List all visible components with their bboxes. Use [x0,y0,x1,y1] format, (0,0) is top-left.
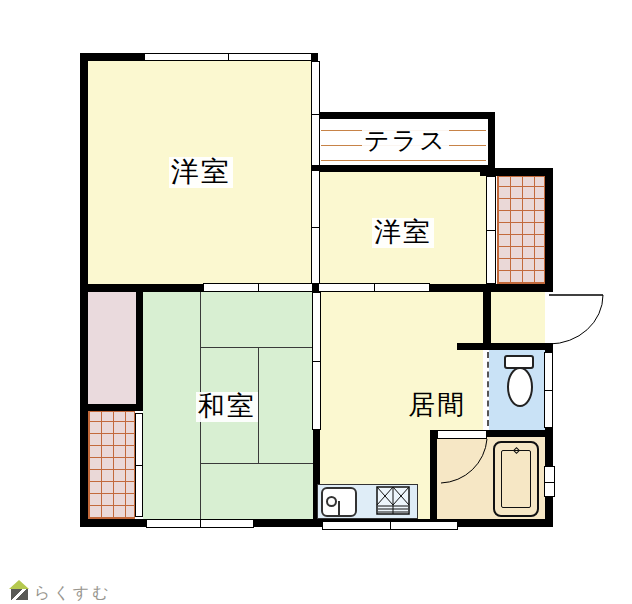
room-label-terrace: テラス [362,127,449,155]
window-top [144,53,312,61]
floor-plan: 洋室 テラス 洋室 和室 居間 らくすむ [0,0,632,604]
wall-terrace-top [318,112,495,119]
entrance-hall-area [491,292,545,350]
window-toilet-right [544,352,553,428]
tatami-line [200,463,313,464]
balcony-left-area [88,411,135,519]
window-western2-right [486,176,496,284]
toilet-folding-door [487,352,489,426]
wall-toilet-top [457,343,553,350]
terrace-deck-line [321,160,486,161]
sink-drain-icon [326,496,337,507]
wall-middle [80,284,553,292]
wall-right-seg-c [545,497,553,527]
stove-icon [376,486,410,515]
window-western1-right-lower [311,170,320,284]
bathroom-door-arc [435,435,491,487]
wall-right-upper [545,168,553,292]
window-bottom-japanese [146,519,254,528]
window-bottom-kitchen [322,521,458,530]
logo-text: らくすむ [34,583,112,604]
toilet-bowl-icon [507,367,533,407]
wall-bath-top [483,430,553,437]
window-bath-right [544,466,555,497]
room-label-western1: 洋室 [169,157,233,188]
window-western1-right-upper [311,61,320,166]
tatami-line [200,347,313,348]
room-label-living: 居間 [406,391,468,421]
sliding-door-western1-japanese [203,283,313,292]
bathtub-inner [501,450,531,508]
balcony-right-area [497,176,545,284]
wall-terrace-bottom [318,165,495,172]
room-label-japanese: 和室 [196,392,258,422]
window-japanese-left [135,413,143,517]
wall-entrance-left [483,292,491,347]
closet-area [88,292,136,404]
logo: らくすむ [9,579,129,603]
wall-balcony-top [480,168,553,176]
logo-house-roof-icon [9,580,29,589]
wall-closet-bottom [80,404,143,411]
room-label-western2: 洋室 [372,218,434,248]
entrance-door [545,291,607,349]
sliding-door-japanese-living [312,292,321,430]
wall-terrace-right [488,112,495,172]
tatami-line [258,347,259,464]
wall-closet-right [136,292,143,404]
sliding-door-western2-living [318,283,430,292]
logo-house-body-icon [11,589,28,600]
faucet-icon [338,501,340,516]
